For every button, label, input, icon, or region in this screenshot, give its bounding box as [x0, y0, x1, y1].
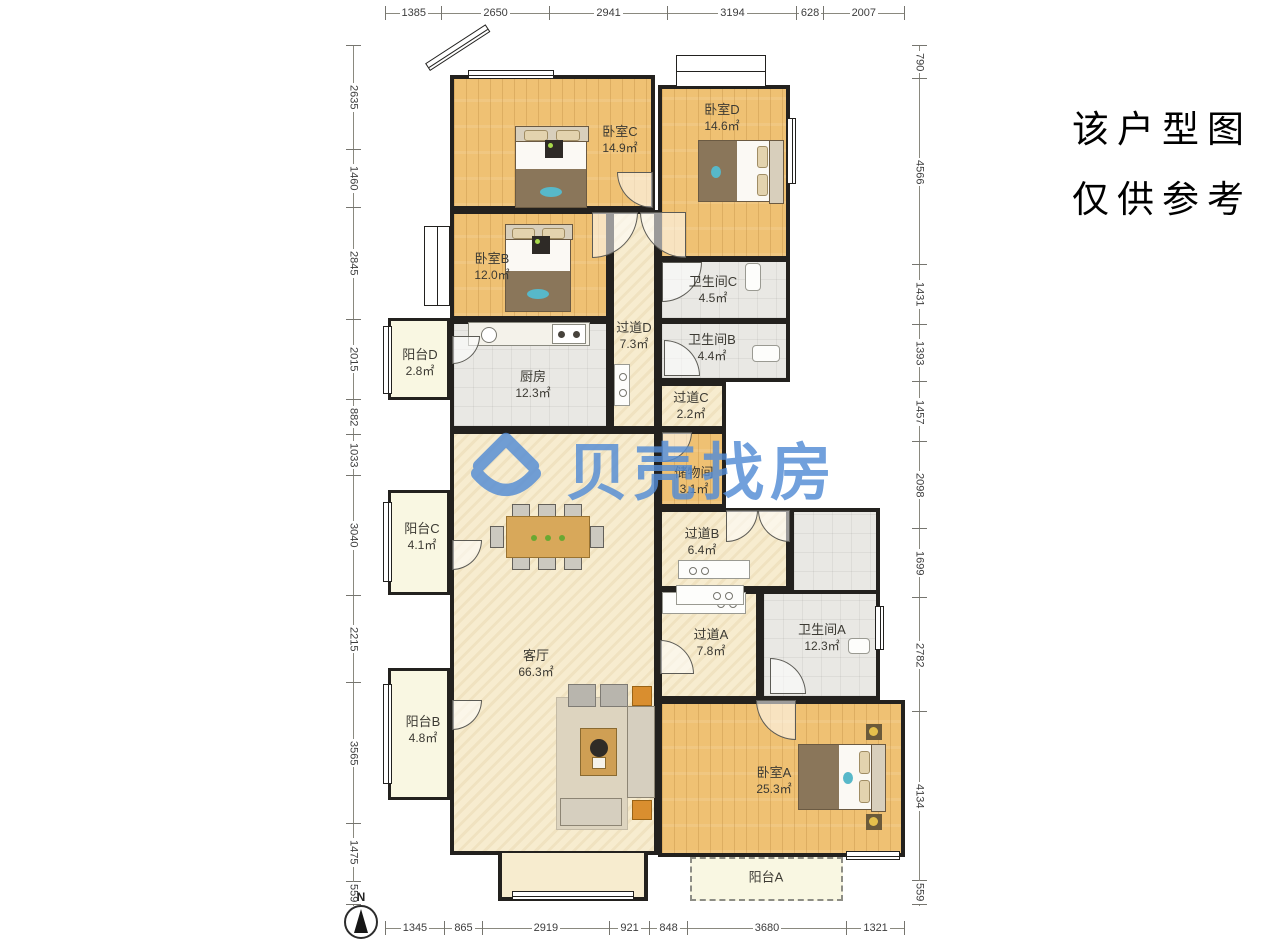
compass-circle — [344, 905, 378, 939]
disclaimer-line-2: 仅供参考 — [1072, 166, 1252, 236]
dimension-segment: 1460 — [346, 149, 361, 207]
dimension-value: 3040 — [348, 523, 360, 547]
coffee-table — [580, 728, 617, 776]
dimension-value: 4566 — [914, 160, 926, 184]
dimension-value: 2007 — [852, 7, 876, 19]
room-label-bath-c: 卫生间C 4.5㎡ — [689, 274, 737, 306]
dimension-value: 1460 — [348, 166, 360, 190]
dimension-segment: 628 — [796, 6, 822, 20]
room-label-living: 客厅 66.3㎡ — [518, 648, 553, 680]
dimension-segment: 2635 — [346, 45, 361, 149]
armchair — [600, 684, 628, 707]
dimension-segment: 2215 — [346, 595, 361, 682]
bed-bedroom-a — [798, 744, 886, 810]
room-label-bath-b: 卫生间B 4.4㎡ — [688, 332, 736, 364]
entry-cabinet — [678, 560, 750, 579]
sofa-bench — [560, 798, 622, 826]
dimension-segment: 1033 — [346, 434, 361, 475]
dimension-segment: 3040 — [346, 475, 361, 595]
dimension-value: 2919 — [534, 922, 558, 934]
dimension-value: 2941 — [596, 7, 620, 19]
dining-chair — [512, 556, 530, 570]
dimension-segment: 2015 — [346, 319, 361, 399]
dimension-segment: 2845 — [346, 207, 361, 319]
dining-chair — [590, 526, 604, 548]
dimension-segment: 1385 — [385, 6, 441, 20]
dimension-value: 2782 — [914, 643, 926, 667]
room-label-bedroom-c: 卧室C 14.9㎡ — [602, 124, 637, 156]
room-label-kitchen: 厨房 12.3㎡ — [515, 369, 550, 401]
dimension-value: 921 — [620, 922, 638, 934]
side-table — [632, 800, 652, 820]
dimension-track-left: 2635 1460 2845 2015 882 1033 3040 — [346, 45, 361, 905]
room-label-balcony-a: 阳台A — [749, 870, 784, 887]
kitchen-stove — [552, 324, 586, 344]
dimension-value: 1431 — [914, 282, 926, 306]
dimension-value: 3565 — [348, 741, 360, 765]
dimension-value: 1033 — [348, 443, 360, 467]
dimension-track-right: 790 4566 1431 1393 1457 2098 1699 — [912, 45, 927, 905]
dimension-segment: 2650 — [441, 6, 548, 20]
room-label-bedroom-d: 卧室D 14.6㎡ — [704, 102, 739, 134]
nightstand-bedroom-a-top — [866, 724, 882, 740]
dimension-segment: 1699 — [912, 528, 927, 598]
dimension-value: 2635 — [348, 85, 360, 109]
armchair — [568, 684, 596, 707]
dimension-value: 2215 — [348, 627, 360, 651]
shoe-cabinet — [676, 585, 744, 605]
dimension-value: 2098 — [914, 473, 926, 497]
bedroom-c-corner-window — [425, 24, 490, 71]
room-label-bedroom-b: 卧室B 12.0㎡ — [474, 251, 509, 283]
dimension-value: 628 — [801, 7, 819, 19]
dimension-value: 1475 — [348, 840, 360, 864]
bedroom-d-side-window — [787, 118, 796, 184]
disclaimer-text: 该户型图 仅供参考 — [1072, 96, 1252, 237]
dining-table — [506, 516, 590, 558]
dimension-value: 559 — [914, 883, 926, 901]
dimension-segment: 1321 — [846, 921, 904, 935]
bedroom-d-bay-window — [676, 55, 766, 87]
bath-b-sink — [752, 345, 780, 362]
dimension-track-bottom: 1345 865 2919 921 848 3680 1321 — [385, 921, 905, 935]
dining-chair — [490, 526, 504, 548]
dimension-value: 1385 — [402, 7, 426, 19]
entry-tile-area — [790, 508, 880, 595]
bedroom-c-window — [468, 70, 554, 79]
bedroom-a-window — [846, 851, 900, 860]
dimension-segment: 2098 — [912, 441, 927, 527]
dimension-segment: 2007 — [823, 6, 904, 20]
dimension-value: 848 — [659, 922, 677, 934]
dimension-value: 3680 — [755, 922, 779, 934]
dimension-value: 4134 — [914, 784, 926, 808]
room-label-hall-a: 过道A 7.8㎡ — [694, 627, 729, 659]
nightstand-bedroom-c — [545, 140, 563, 158]
room-label-hall-c: 过道C 2.2㎡ — [673, 390, 708, 422]
dimension-segment: 2919 — [482, 921, 609, 935]
dimension-segment: 790 — [912, 45, 927, 78]
dimension-segment: 882 — [346, 399, 361, 434]
dimension-segment: 4566 — [912, 78, 927, 264]
bath-a-toilet — [848, 638, 870, 654]
disclaimer-line-1: 该户型图 — [1072, 96, 1252, 166]
room-label-balcony-d: 阳台D 2.8㎡ — [402, 347, 437, 379]
dimension-value: 1699 — [914, 551, 926, 575]
floorplan-page: 1385 2650 2941 3194 628 2007 — [0, 0, 1280, 944]
dimension-value: 1345 — [403, 922, 427, 934]
dimension-value: 1393 — [914, 341, 926, 365]
room-label-bedroom-a: 卧室A 25.3㎡ — [756, 765, 791, 797]
dimension-value: 1457 — [914, 400, 926, 424]
compass-needle-icon — [354, 909, 368, 933]
living-bay-window-glass — [512, 891, 634, 900]
balcony-d-window — [383, 326, 392, 394]
dimension-value: 882 — [348, 408, 360, 426]
room-label-bath-a: 卫生间A 12.3㎡ — [798, 622, 846, 654]
bath-a-window — [875, 606, 884, 650]
nightstand-bedroom-b — [532, 236, 550, 254]
dining-chair — [538, 556, 556, 570]
dimension-segment: 3194 — [667, 6, 796, 20]
room-label-hall-d: 过道D 7.3㎡ — [616, 320, 651, 352]
bath-c-toilet — [745, 263, 761, 291]
dimension-segment: 1457 — [912, 381, 927, 441]
dimension-value: 865 — [454, 922, 472, 934]
hall-d-cabinet — [614, 364, 630, 406]
dimension-segment: 1345 — [385, 921, 444, 935]
balcony-b-window — [383, 684, 392, 784]
dining-chair — [564, 556, 582, 570]
dimension-segment: 2941 — [549, 6, 668, 20]
room-label-balcony-b: 阳台B 4.8㎡ — [406, 714, 441, 746]
compass-north-indicator: N — [338, 890, 384, 939]
dimension-segment: 921 — [609, 921, 650, 935]
side-table — [632, 686, 652, 706]
dimension-value: 2015 — [348, 347, 360, 371]
room-label-balcony-c: 阳台C 4.1㎡ — [404, 521, 439, 553]
nightstand-bedroom-a-bottom — [866, 814, 882, 830]
dimension-value: 2845 — [348, 251, 360, 275]
sofa — [627, 706, 655, 798]
dimension-segment: 2782 — [912, 597, 927, 711]
dimension-segment: 559 — [912, 880, 927, 904]
dimension-segment: 3565 — [346, 682, 361, 822]
dimension-segment: 4134 — [912, 711, 927, 880]
dimension-segment: 848 — [649, 921, 686, 935]
dimension-segment: 1431 — [912, 264, 927, 323]
dimension-segment: 865 — [444, 921, 482, 935]
bed-bedroom-d — [698, 140, 784, 202]
dimension-value: 3194 — [720, 7, 744, 19]
compass-north-label: N — [338, 890, 384, 904]
room-label-hall-b: 过道B 6.4㎡ — [685, 526, 720, 558]
dimension-value: 1321 — [863, 922, 887, 934]
dimension-segment: 1475 — [346, 823, 361, 882]
bedroom-b-bay-window — [424, 226, 450, 306]
dimension-track-top: 1385 2650 2941 3194 628 2007 — [385, 6, 905, 20]
dimension-segment: 1393 — [912, 324, 927, 382]
dimension-segment: 3680 — [687, 921, 846, 935]
dimension-value: 790 — [914, 53, 926, 71]
room-label-storage: 储物间 3.1㎡ — [674, 465, 713, 497]
balcony-c-window — [383, 502, 392, 582]
dimension-value: 2650 — [483, 7, 507, 19]
bed-bedroom-c — [515, 126, 587, 208]
